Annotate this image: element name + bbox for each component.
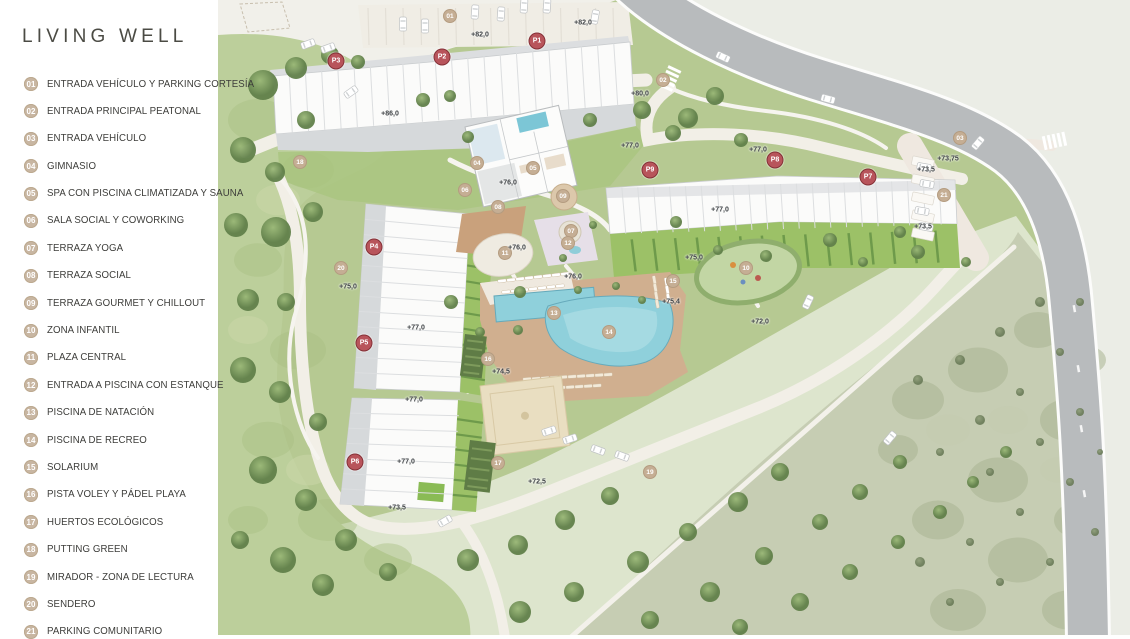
- legend-item-label: TERRAZA YOGA: [47, 243, 123, 254]
- legend-item-label: PISCINA DE NATACIÓN: [47, 407, 154, 418]
- legend-item-number: 20: [24, 597, 38, 611]
- legend-item-number: 04: [24, 159, 38, 173]
- page-title: LIVING WELL: [22, 26, 188, 48]
- legend-item-label: SPA CON PISCINA CLIMATIZADA Y SAUNA: [47, 188, 243, 199]
- legend-item-number: 12: [24, 378, 38, 392]
- legend-item-label: ZONA INFANTIL: [47, 325, 120, 336]
- legend-item-number: 17: [24, 515, 38, 529]
- legend-item-label: SOLARIUM: [47, 462, 98, 473]
- legend-item-label: ENTRADA VEHÍCULO: [47, 133, 146, 144]
- legend-item-label: PLAZA CENTRAL: [47, 352, 126, 363]
- lawn-patch: [417, 482, 444, 502]
- legend-item-number: 07: [24, 241, 38, 255]
- legend-item-16: 16PISTA VOLEY Y PÁDEL PLAYA: [24, 488, 270, 502]
- legend-item-19: 19MIRADOR - ZONA DE LECTURA: [24, 570, 270, 584]
- legend-item-label: TERRAZA GOURMET Y CHILLOUT: [47, 298, 205, 309]
- playground-equipment: [730, 262, 736, 268]
- legend-item-number: 06: [24, 214, 38, 228]
- water-feature-estanque: [559, 221, 581, 243]
- legend-item-03: 03ENTRADA VEHÍCULO: [24, 132, 270, 146]
- legend-item-15: 15SOLARIUM: [24, 460, 270, 474]
- legend-item-12: 12ENTRADA A PISCINA CON ESTANQUE: [24, 378, 270, 392]
- legend-item-label: ENTRADA A PISCINA CON ESTANQUE: [47, 380, 224, 391]
- legend-item-number: 13: [24, 406, 38, 420]
- legend-item-label: PARKING COMUNITARIO: [47, 626, 162, 637]
- legend-item-13: 13PISCINA DE NATACIÓN: [24, 406, 270, 420]
- legend-item-09: 09TERRAZA GOURMET Y CHILLOUT: [24, 296, 270, 310]
- legend-item-10: 10ZONA INFANTIL: [24, 324, 270, 338]
- legend-item-label: GIMNASIO: [47, 161, 96, 172]
- legend-item-number: 08: [24, 269, 38, 283]
- legend-item-08: 08TERRAZA SOCIAL: [24, 269, 270, 283]
- legend-item-number: 16: [24, 488, 38, 502]
- legend-item-07: 07TERRAZA YOGA: [24, 241, 270, 255]
- masterplan-drawing: [218, 0, 1130, 635]
- legend-item-label: TERRAZA SOCIAL: [47, 270, 131, 281]
- legend-item-14: 14PISCINA DE RECREO: [24, 433, 270, 447]
- legend-item-label: PISTA VOLEY Y PÁDEL PLAYA: [47, 489, 186, 500]
- legend-item-label: ENTRADA PRINCIPAL PEATONAL: [47, 106, 201, 117]
- legend-item-number: 15: [24, 460, 38, 474]
- legend-item-number: 19: [24, 570, 38, 584]
- legend-item-label: PISCINA DE RECREO: [47, 435, 147, 446]
- masterplan-map[interactable]: P1P2P3P4P5P6P7P8P90102030405060708091011…: [218, 0, 1130, 635]
- playground-equipment: [741, 280, 746, 285]
- legend-item-21: 21PARKING COMUNITARIO: [24, 625, 270, 639]
- legend-item-number: 01: [24, 77, 38, 91]
- legend-item-11: 11PLAZA CENTRAL: [24, 351, 270, 365]
- legend-item-01: 01ENTRADA VEHÍCULO Y PARKING CORTESÍA: [24, 77, 270, 91]
- legend-item-number: 21: [24, 625, 38, 639]
- legend-item-number: 11: [24, 351, 38, 365]
- legend-item-number: 02: [24, 104, 38, 118]
- legend-list: 01ENTRADA VEHÍCULO Y PARKING CORTESÍA02E…: [24, 77, 270, 639]
- legend-item-number: 14: [24, 433, 38, 447]
- legend-item-05: 05SPA CON PISCINA CLIMATIZADA Y SAUNA: [24, 187, 270, 201]
- playground-equipment: [755, 275, 761, 281]
- legend-item-06: 06SALA SOCIAL Y COWORKING: [24, 214, 270, 228]
- legend-item-label: PUTTING GREEN: [47, 544, 128, 555]
- legend-item-number: 05: [24, 187, 38, 201]
- legend-item-label: SENDERO: [47, 599, 95, 610]
- legend-item-02: 02ENTRADA PRINCIPAL PEATONAL: [24, 104, 270, 118]
- legend-item-number: 18: [24, 543, 38, 557]
- legend-item-label: SALA SOCIAL Y COWORKING: [47, 215, 184, 226]
- legend-item-number: 09: [24, 296, 38, 310]
- legend-item-label: ENTRADA VEHÍCULO Y PARKING CORTESÍA: [47, 79, 254, 90]
- legend-item-20: 20SENDERO: [24, 597, 270, 611]
- legend-item-17: 17HUERTOS ECOLÓGICOS: [24, 515, 270, 529]
- legend-item-label: HUERTOS ECOLÓGICOS: [47, 517, 163, 528]
- legend-item-label: MIRADOR - ZONA DE LECTURA: [47, 572, 194, 583]
- legend-panel: LIVING WELL 01ENTRADA VEHÍCULO Y PARKING…: [0, 0, 218, 635]
- yoga-deck: [551, 184, 577, 210]
- legend-item-04: 04GIMNASIO: [24, 159, 270, 173]
- legend-item-18: 18PUTTING GREEN: [24, 543, 270, 557]
- legend-item-number: 03: [24, 132, 38, 146]
- pond: [569, 246, 581, 254]
- legend-item-number: 10: [24, 324, 38, 338]
